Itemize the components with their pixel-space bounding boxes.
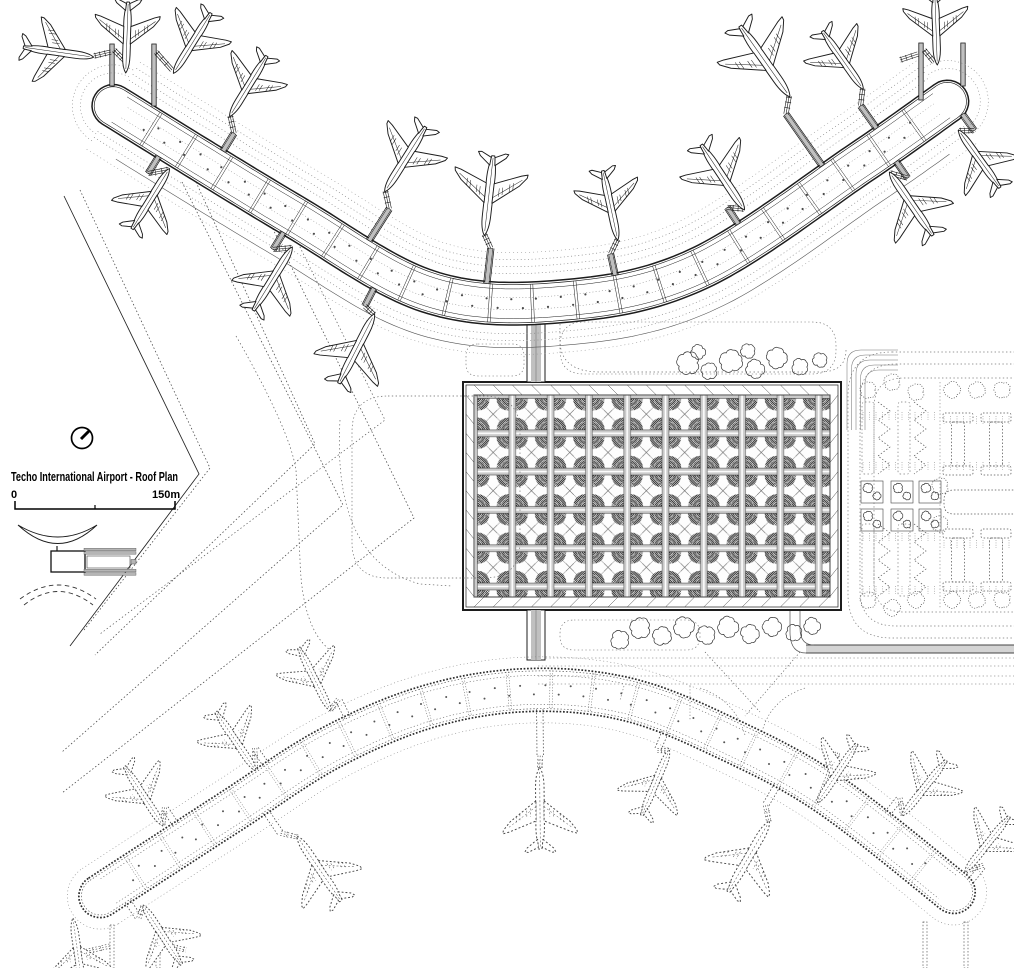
svg-text:0: 0 <box>11 489 17 501</box>
svg-text:Techo International Airport -: Techo International Airport - Roof Plan <box>11 469 178 484</box>
svg-text:150m: 150m <box>152 489 180 501</box>
